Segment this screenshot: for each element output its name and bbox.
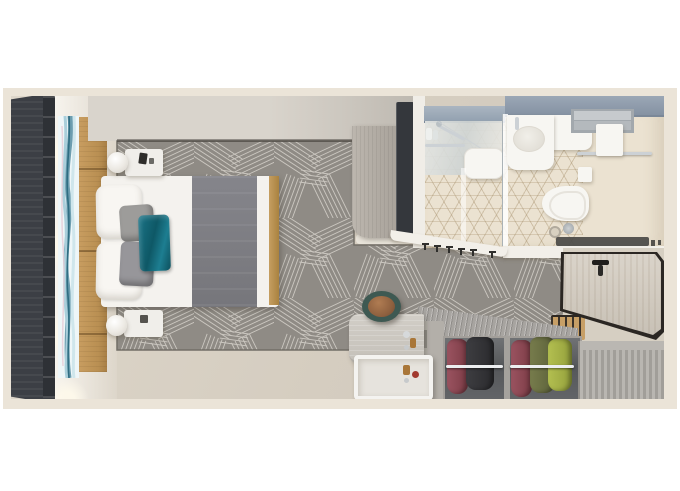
carpet-top-shadow [117,139,355,142]
toiletry-bottle-amber [410,338,416,348]
nightstand-decor [149,158,154,164]
toilet [542,186,589,221]
stool-leather-seat [368,296,395,317]
headboard-seam [79,168,107,170]
tray-item-red [412,371,419,378]
tray-table [354,355,433,400]
outer-wall-right [664,88,677,409]
nightstand-decor [140,315,148,323]
closet-handle-groove [424,330,427,348]
outer-wall-top [3,88,677,96]
toilet-seat-line [549,191,586,220]
closet-divider [504,336,510,399]
folded-towel [574,111,631,120]
bedside-lamp-top [107,152,128,173]
agate-art-panel [58,116,79,378]
slatted-cabinet-top [580,341,666,350]
coat-hook [460,248,462,255]
shampoo-bottle [426,128,432,140]
garment-dark [466,337,494,390]
cabin-floorplan-render [0,0,680,491]
glass-partition-low [461,168,466,246]
outer-wall-left [3,88,11,409]
toiletry-bottle-chrome [403,331,410,338]
tray-bottle-amber [403,365,410,375]
toiletry-bottle-small [404,345,409,350]
shampoo-bottle [433,130,438,140]
wall-mounted-tv [396,102,414,234]
coat-hook [448,246,450,253]
coat-hook [424,243,426,250]
shower-mixer-bar [425,144,465,147]
toilet-brush [563,223,574,234]
bath-mat [556,237,649,246]
hanging-towel [596,124,623,156]
sink-basin [513,126,545,152]
closet-rod [446,365,503,368]
balcony-window [10,94,55,402]
tray-item-chrome [404,378,409,383]
nightstand-decor [138,152,147,164]
garment-maroon [511,340,532,397]
outer-wall-bottom [3,399,677,409]
nightstand-top [125,149,163,176]
coat-hook [472,249,474,256]
wardrobe-tower [352,126,398,238]
toilet-paper-holder [578,167,592,182]
faucet [515,117,519,130]
gray-bed-runner [192,176,257,307]
nightstand-bottom [124,310,163,337]
bed-frame-edge [269,176,279,305]
coat-hook [491,251,493,258]
round-stool [362,291,401,322]
slatted-cabinet [578,341,666,399]
window-frame-edge [43,96,55,398]
closet-rod [510,365,574,368]
headboard-seam [79,333,107,335]
door-handle-stem [598,265,603,276]
door-hinge [658,240,661,245]
teal-accent-pillow [138,214,171,271]
coat-hook [436,245,438,252]
shower-seat [464,148,504,179]
bedside-lamp-bottom [106,315,127,336]
